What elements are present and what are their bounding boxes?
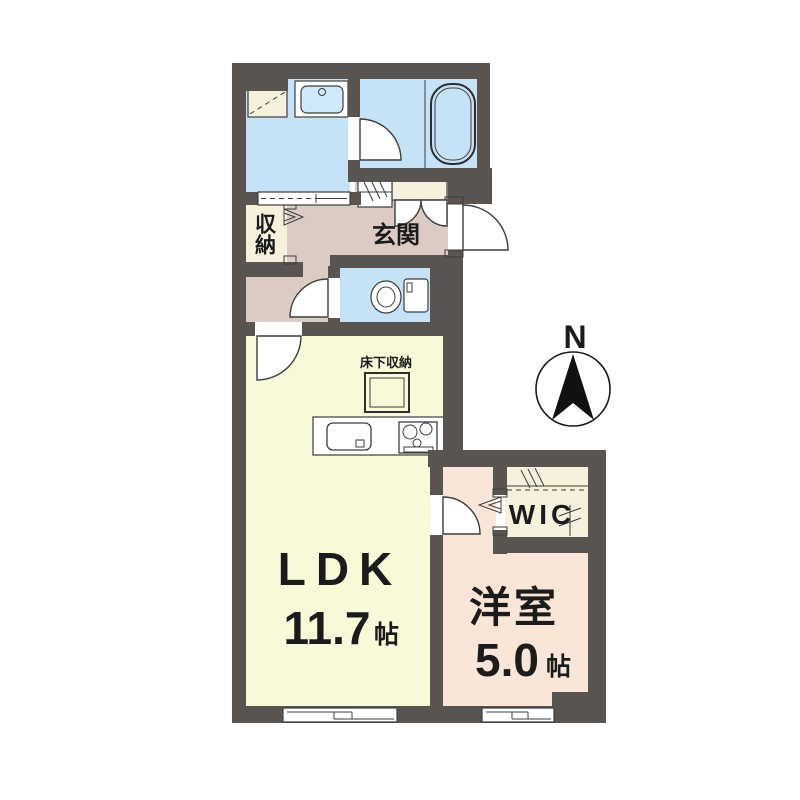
wall-wic-left-upper <box>493 462 507 495</box>
wall-ldk-bedroom-upper <box>430 467 443 495</box>
wall-washroom-corner <box>246 76 288 91</box>
wall-left <box>232 63 246 723</box>
bedroom-door-opening <box>430 495 443 535</box>
wall-toilet-right <box>430 255 463 327</box>
toilet-tank <box>404 279 428 312</box>
wall-entry-step <box>448 182 492 204</box>
wall-kitchen-right <box>443 327 463 453</box>
ldk-door-opening <box>255 322 302 336</box>
wall-wash-bath-upper <box>348 63 360 119</box>
bedroom-size: 5.0 <box>475 634 539 686</box>
ldk-size: 11.7 <box>284 602 371 654</box>
wall-ldk-bedroom-lower <box>430 535 443 713</box>
toilet-bowl <box>371 281 401 313</box>
entry-door-opening <box>448 204 463 250</box>
toilet-door-opening <box>328 278 340 318</box>
underfloor-storage-label: 床下収納 <box>360 355 412 370</box>
bedroom-size-unit: 帖 <box>546 653 571 681</box>
ldk-label: LDK <box>278 543 403 595</box>
floor-plan: LDK 11.7 帖 洋室 5.0 帖 WIC 玄関 収納 床下収納 N <box>0 0 800 800</box>
bathroom-door-opening <box>348 117 360 160</box>
wall-bedroom-right <box>588 450 606 723</box>
floor-plan-page: LDK 11.7 帖 洋室 5.0 帖 WIC 玄関 収納 床下収納 N <box>0 0 800 800</box>
storage-label: 収納 <box>253 213 277 256</box>
ldk-window <box>283 708 397 722</box>
wall-wic-top <box>428 450 606 467</box>
ldk-size-unit: 帖 <box>374 621 399 649</box>
wall-bedroom-corner-block <box>552 692 606 723</box>
wall-wic-bottom <box>501 537 590 553</box>
wall-bath-right <box>477 63 490 182</box>
bedroom-window <box>482 708 554 722</box>
wic-label: WIC <box>509 499 575 530</box>
entrance-label: 玄関 <box>372 221 420 249</box>
bedroom-label: 洋室 <box>469 584 559 631</box>
wall-bath-bottom <box>348 168 492 182</box>
vanity-sink-basin <box>301 86 343 113</box>
compass-north-label: N <box>563 319 586 355</box>
